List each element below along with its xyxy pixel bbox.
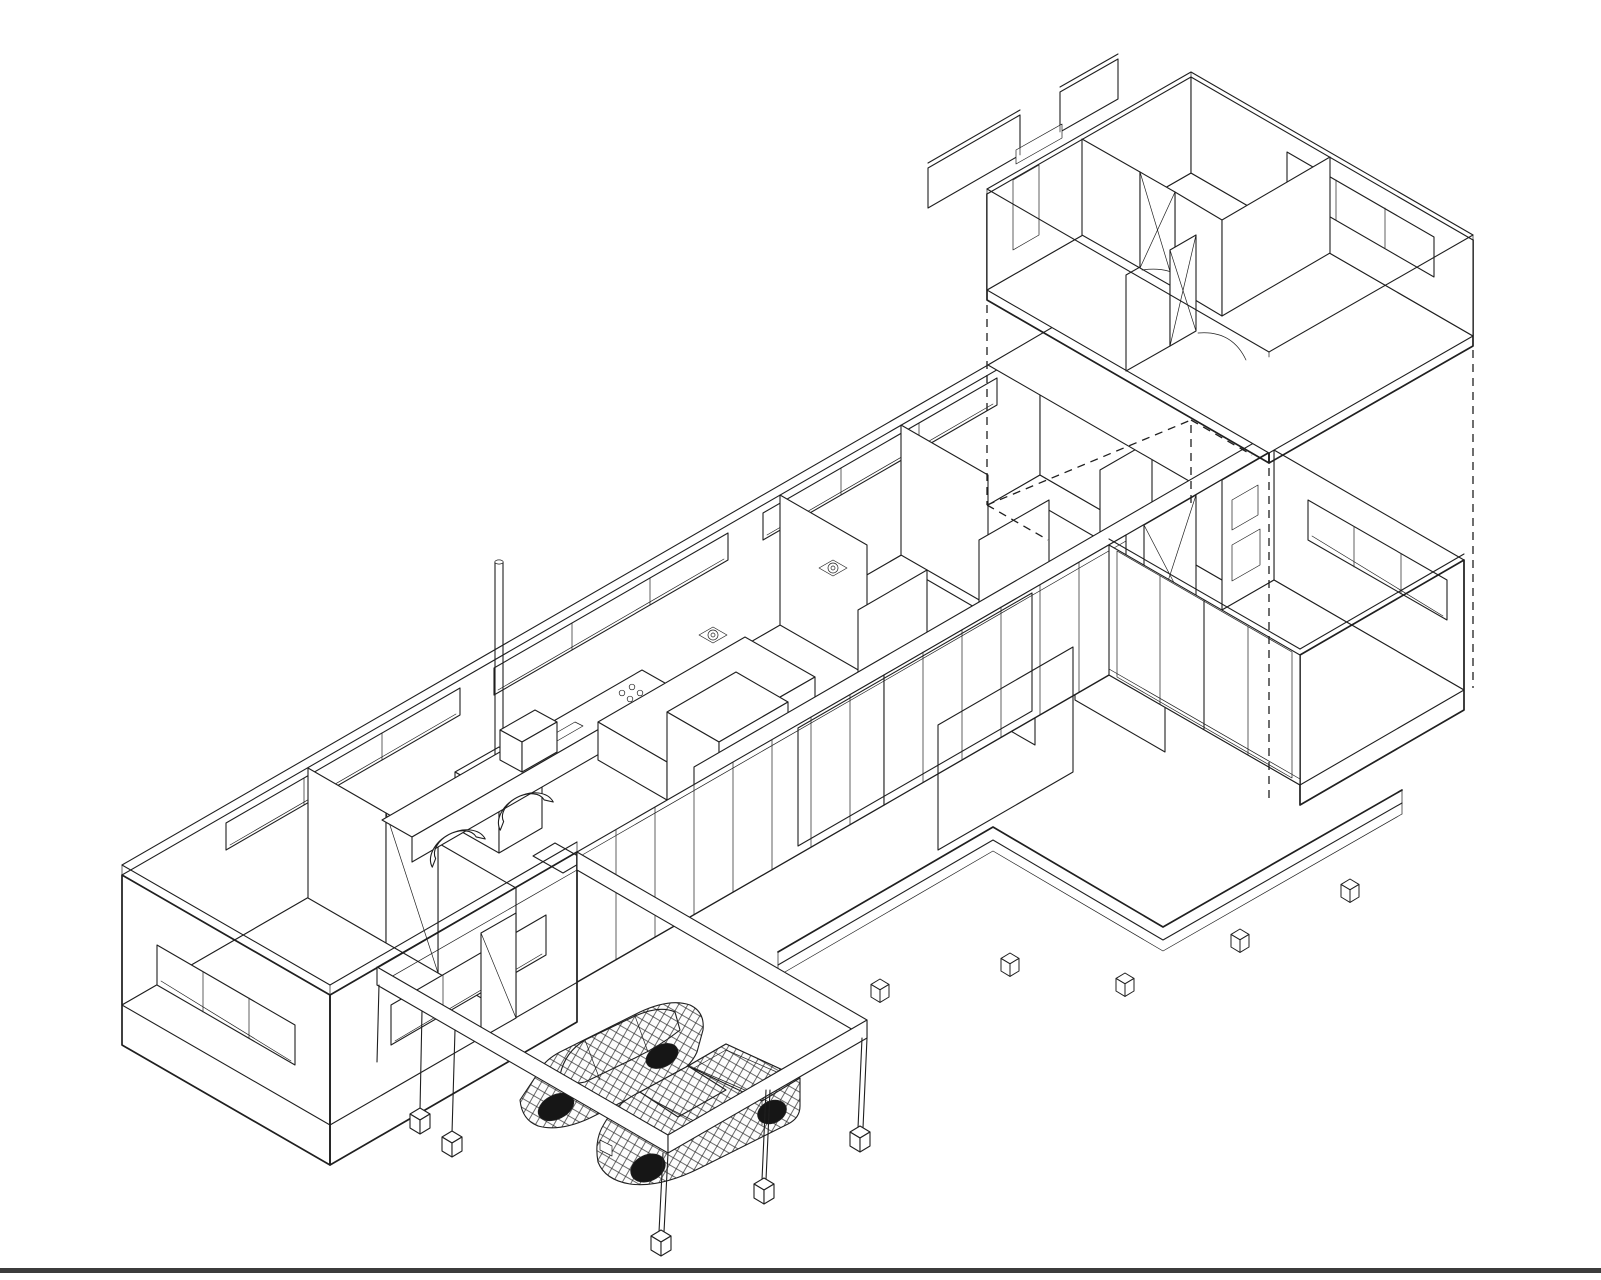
footing-cube — [410, 1108, 430, 1134]
carport-door — [481, 913, 516, 1038]
axonometric-drawing — [0, 0, 1601, 1280]
footing-cube — [651, 1230, 671, 1256]
deck-footing — [871, 979, 889, 1002]
footing-cube — [754, 1178, 774, 1204]
deck-footing — [1001, 953, 1019, 976]
deck — [778, 790, 1402, 1002]
window — [1013, 165, 1039, 250]
deck-footing — [1231, 929, 1249, 952]
drawing-canvas — [0, 0, 1601, 1280]
footing-cube — [850, 1126, 870, 1152]
deck-footing — [1116, 973, 1134, 996]
footing-cube — [442, 1131, 462, 1157]
deck-footing — [1341, 879, 1359, 902]
sheet-border — [0, 1268, 1601, 1273]
